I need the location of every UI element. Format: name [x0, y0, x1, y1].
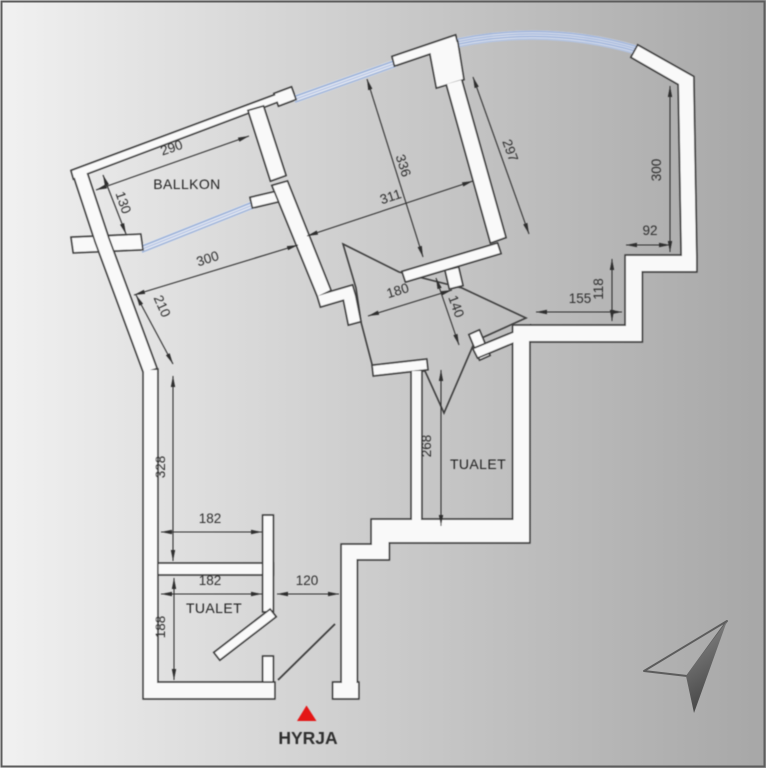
svg-text:TUALET: TUALET: [450, 456, 506, 472]
svg-text:300: 300: [649, 159, 664, 182]
svg-text:182: 182: [199, 573, 222, 588]
svg-text:118: 118: [591, 278, 606, 300]
svg-text:BALLKON: BALLKON: [153, 176, 220, 192]
svg-text:HYRJA: HYRJA: [278, 728, 338, 748]
svg-text:155: 155: [569, 291, 592, 306]
svg-text:268: 268: [419, 435, 434, 458]
svg-text:188: 188: [153, 616, 168, 639]
svg-text:92: 92: [642, 223, 657, 238]
svg-text:182: 182: [199, 511, 222, 526]
svg-text:TUALET: TUALET: [186, 600, 242, 616]
svg-text:328: 328: [153, 456, 168, 479]
svg-text:120: 120: [296, 573, 319, 588]
